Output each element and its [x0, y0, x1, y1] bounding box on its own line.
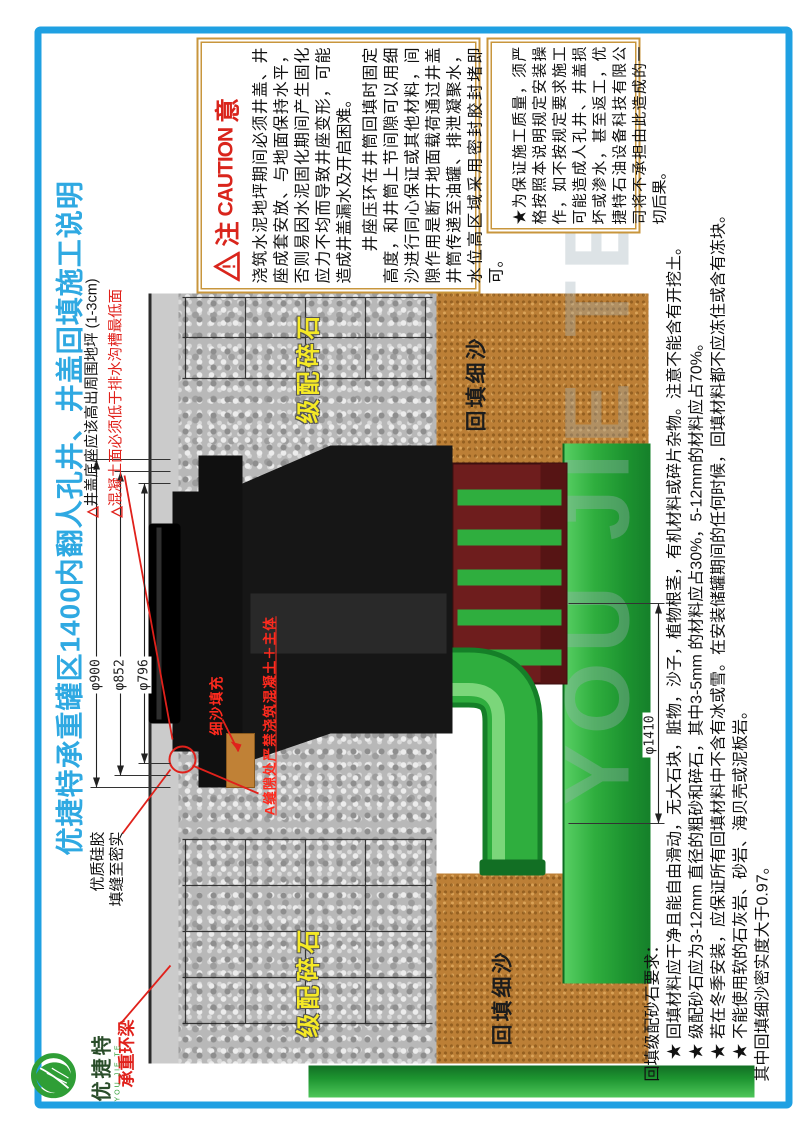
backfill-spec-block: 回填级配砂石要求： ★ 回填材料应干净且能自由滑动，无大石块，脏物，沙子，植物根… [642, 35, 774, 1081]
logo-romanized: YOU JIE TE [114, 1015, 121, 1101]
sand-fill-note: 细沙填充 [206, 675, 226, 735]
backfill-spec-item: ★ 级配砂石应为3-12mm 直径的粗砂和碎石，其中3-5mm 的材料应占30%… [686, 35, 708, 1081]
concrete-level-note: △混凝土面必须低于排水沟槽最低面 [104, 288, 125, 517]
caution-box-warranty: ★为保证施工质量，须严格按照本说明规定安装操作，如不按规定要求施工可能造成人孔井… [486, 37, 640, 233]
company-logo: 优捷特 YOU JIE TE [28, 1015, 121, 1101]
caution-header: 注CAUTION意 [208, 47, 244, 281]
sand-label-left: 回填细沙 [486, 949, 516, 1045]
gap-warning-note: A缝隙处严禁浇筑混凝土＋主体 [258, 616, 278, 815]
warning-triangle-icon: △ [108, 506, 124, 517]
watermark-text: YOU JIE TE [545, 199, 650, 805]
silicone-seal-note: 优质硅胶 填缝至密实 [88, 831, 126, 927]
caution-title-en: CAUTION [214, 127, 238, 216]
page-title: 优捷特承重罐区1400内翻人孔井、井盖回填施工说明 [48, 180, 88, 855]
caution-paragraph-2: 井座压环在井筒回填时固定高度，和井筒上节间隙可以用细沙进行同心保证或其他材料，间… [360, 47, 507, 283]
gravel-label-left: 级配碎石 [288, 925, 323, 1037]
sand-label-right: 回填细沙 [460, 335, 490, 431]
caution-title-prefix: 注 [208, 221, 244, 246]
logo-name: 优捷特 [85, 1015, 114, 1101]
caution-box-main: 注CAUTION意 浇筑水泥地坪期间必须井盖、井座成套安放、与地面保持水平，否则… [196, 37, 480, 293]
instruction-sheet-page: 优捷特 YOU JIE TE 优捷特承重罐区1400内翻人孔井、井盖回填施工说明 [0, 0, 794, 1123]
backfill-spec-item: ★ 若在冬季安装，应保证所有回填材料中不含有冰或雪。在安装储罐期间的任何时候，回… [708, 35, 730, 1081]
caution-triangle-icon [213, 251, 240, 281]
backfill-spec-note: 其中回填细沙密实度大于0.97。 [752, 35, 774, 1081]
backfill-spec-item: ★ 回填材料应干净且能自由滑动，无大石块，脏物，沙子，植物根茎，有机材料或碎片杂… [664, 35, 686, 1081]
landscape-sheet: 优捷特 YOU JIE TE 优捷特承重罐区1400内翻人孔井、井盖回填施工说明 [0, 0, 794, 1123]
dim-label-796: φ796 [136, 656, 151, 693]
dim-label-852: φ852 [112, 656, 127, 693]
dim-label-900: φ900 [88, 656, 103, 693]
gravel-label-right: 级配碎石 [288, 311, 323, 423]
backfill-spec-item: ★ 不能使用软的石灰岩、砂岩、海贝壳或泥板岩。 [730, 35, 752, 1081]
leaf-logo-icon [28, 1051, 78, 1101]
backfill-spec-heading: 回填级配砂石要求： [642, 35, 664, 1081]
concrete-slab-layer [148, 293, 182, 1063]
caution-title-suffix: 意 [208, 97, 244, 122]
caution-paragraph-1: 浇筑水泥地坪期间必须井盖、井座成套安放、与地面保持水平，否则易因水泥固化期间产生… [250, 47, 355, 283]
